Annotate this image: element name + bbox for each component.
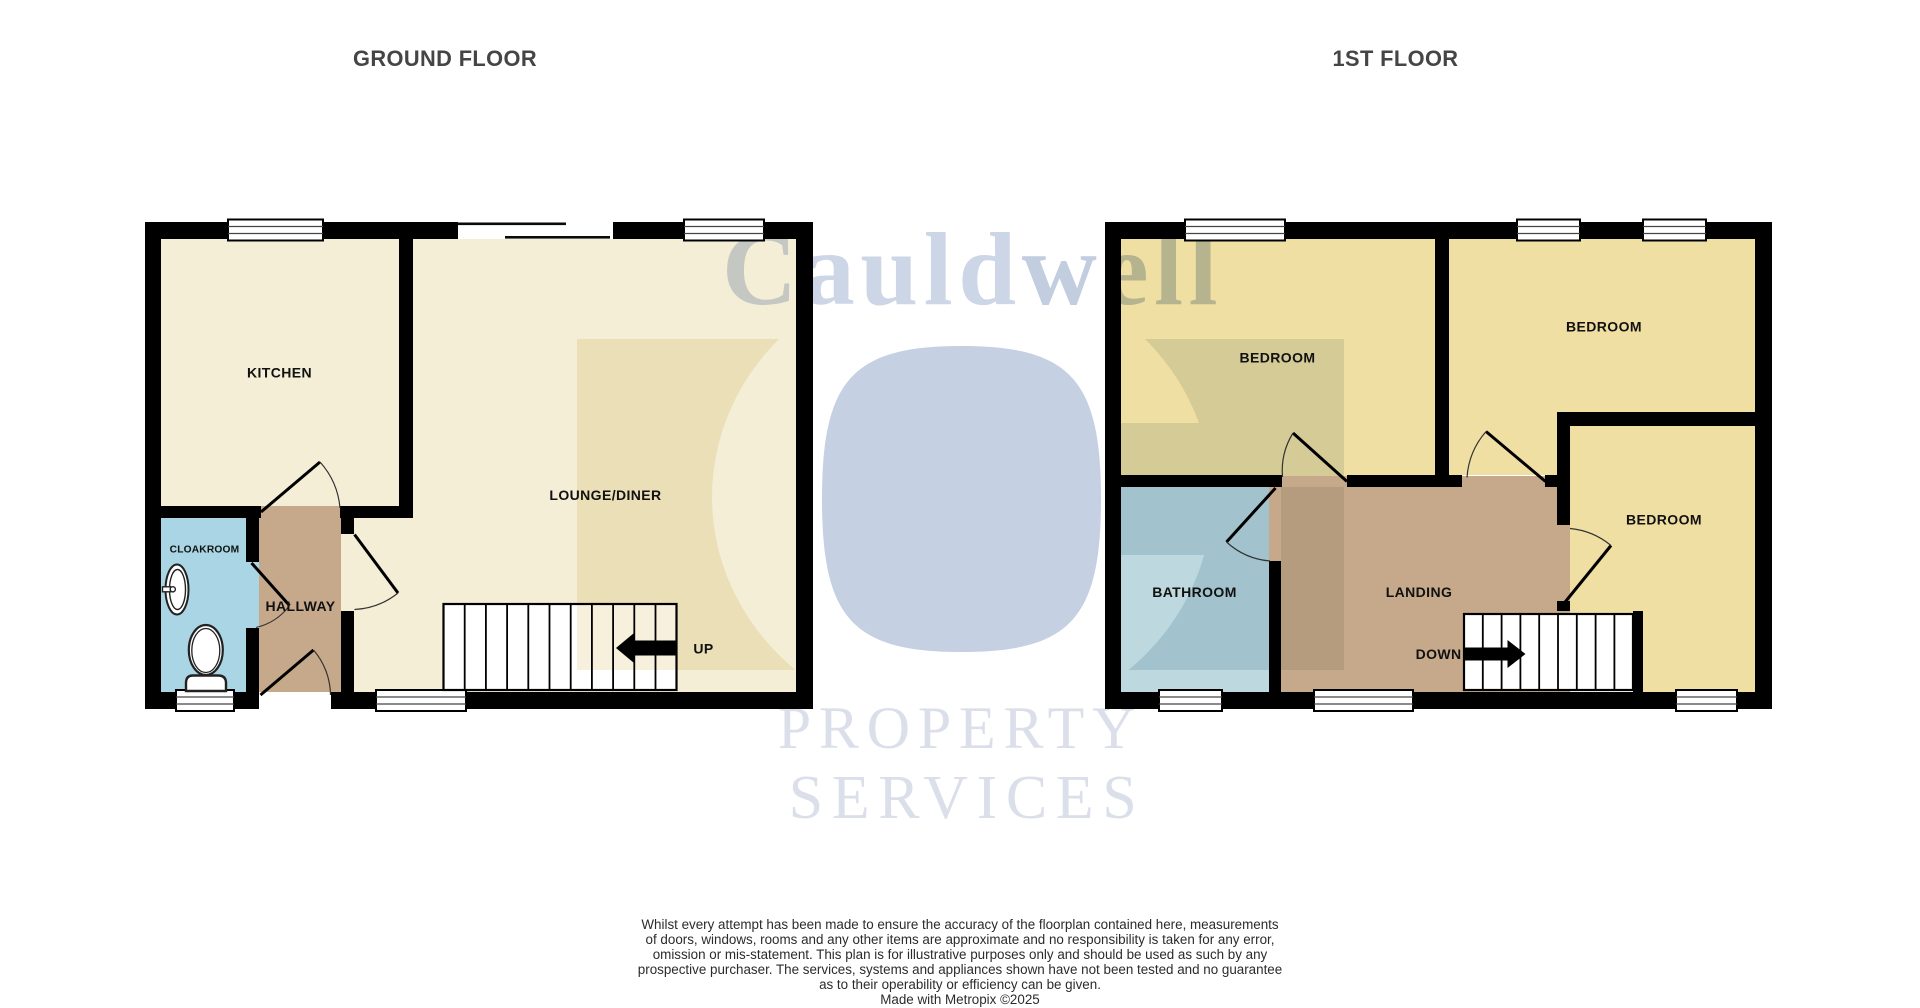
svg-text:PROPERTY: PROPERTY [778, 695, 1144, 761]
svg-text:1ST FLOOR: 1ST FLOOR [1333, 46, 1459, 71]
svg-text:CLOAKROOM: CLOAKROOM [170, 545, 240, 556]
svg-text:BATHROOM: BATHROOM [1152, 584, 1237, 600]
svg-text:GROUND FLOOR: GROUND FLOOR [353, 46, 537, 71]
svg-text:omission or mis-statement. Thi: omission or mis-statement. This plan is … [653, 947, 1268, 962]
svg-text:BEDROOM: BEDROOM [1240, 350, 1316, 366]
svg-text:SERVICES: SERVICES [789, 764, 1146, 832]
svg-text:BEDROOM: BEDROOM [1626, 512, 1702, 528]
svg-text:LOUNGE/DINER: LOUNGE/DINER [549, 487, 661, 503]
svg-text:as to their operability or eff: as to their operability or efficiency ca… [819, 977, 1101, 992]
svg-text:HALLWAY: HALLWAY [266, 598, 336, 614]
svg-text:Whilst every attempt has been: Whilst every attempt has been made to en… [641, 917, 1278, 932]
svg-text:Made with Metropix ©2025: Made with Metropix ©2025 [880, 992, 1039, 1007]
svg-text:BEDROOM: BEDROOM [1566, 319, 1642, 335]
svg-text:UP: UP [693, 641, 713, 657]
svg-text:DOWN: DOWN [1416, 646, 1462, 662]
svg-text:LANDING: LANDING [1386, 584, 1453, 600]
svg-text:of doors, windows, rooms and a: of doors, windows, rooms and any other i… [646, 932, 1275, 947]
svg-text:KITCHEN: KITCHEN [247, 365, 312, 381]
svg-text:prospective purchaser. The ser: prospective purchaser. The services, sys… [638, 962, 1282, 977]
